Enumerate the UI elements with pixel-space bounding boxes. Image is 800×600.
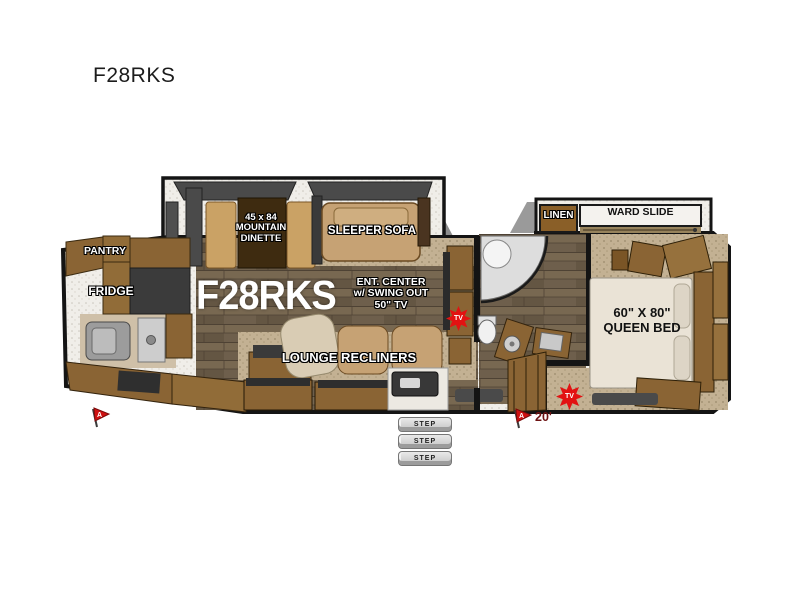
queen-bed-line2: QUEEN BED: [590, 321, 694, 336]
bed-bench: [592, 393, 658, 405]
ent-center-line3: 50" TV: [332, 300, 450, 311]
storage-cabinet-left-top: [246, 378, 310, 386]
ward-slide-label: WARD SLIDE: [580, 207, 701, 219]
wall-living-bath-lower: [474, 388, 480, 412]
bedroom-chest-upper: [713, 262, 728, 318]
awning-length-label: 20': [535, 410, 552, 424]
bed-headboard: [694, 272, 714, 392]
slide-side-window: [166, 202, 178, 240]
ward-rod-end: [693, 228, 697, 232]
model-label: F28RKS: [196, 273, 336, 319]
queen-bed-label: 60" X 80" QUEEN BED: [590, 306, 694, 335]
ent-center-base: [449, 338, 471, 364]
slide-window-right: [308, 182, 432, 200]
toilet: [478, 320, 496, 344]
bath-mirror: [539, 332, 563, 351]
queen-bed-line1: 60" X 80": [590, 306, 694, 321]
wall-bath-bottom: [541, 360, 591, 366]
fridge-label: FRIDGE: [84, 285, 138, 298]
sofa-end-table: [418, 198, 430, 246]
kitchen-sink-bowl: [92, 328, 116, 354]
awning-flag-entry-svg: A: [510, 407, 534, 431]
lounge-chair: [278, 312, 342, 380]
sleeper-sofa-label: SLEEPER SOFA: [324, 225, 420, 237]
pantry-label: PANTRY: [80, 246, 130, 257]
bed-pillow-bottom: [674, 336, 690, 380]
slide-divider: [312, 196, 322, 264]
overhead-cabinet: [130, 238, 190, 268]
island-sink-drain: [147, 336, 156, 345]
linen-label: LINEN: [539, 211, 578, 222]
floorplan-page: F28RKS: [0, 0, 800, 600]
bedroom-nightstand-top: [612, 250, 628, 270]
entry-step-2: STEP: [398, 434, 452, 449]
awning-flag-front-svg: A: [88, 406, 112, 430]
bath-sink-drain: [510, 342, 515, 347]
bedroom-dresser-left: [628, 241, 667, 276]
entry-steps: STEP STEP STEP: [398, 417, 452, 466]
tv-badge-icon-bedroom: TV: [556, 383, 583, 410]
kitchen-tall-cabinet: [166, 314, 192, 358]
bedroom-chest-lower: [713, 324, 728, 380]
flag-mark: A: [519, 413, 524, 420]
cooktop-burner: [400, 378, 420, 388]
shower-basin: [483, 240, 511, 268]
sofa-back-cushion: [334, 208, 408, 226]
flag-mark: A: [97, 412, 102, 419]
ent-center-label: ENT. CENTER w/ SWING OUT 50" TV: [332, 277, 450, 311]
entry-step-1: STEP: [398, 417, 452, 432]
range-stove: [117, 371, 160, 394]
awning-flag-icon-front: A: [88, 406, 112, 435]
tv-badge-icon-living: TV: [446, 306, 471, 331]
lounge-recliners-label: LOUNGE RECLINERS: [252, 351, 446, 365]
ent-center-line2: w/ SWING OUT: [332, 288, 450, 299]
entry-step-3: STEP: [398, 451, 452, 466]
dinette-label: 45 x 84 MOUNTAIN DINETTE: [224, 213, 298, 244]
dinette-label-line3: DINETTE: [224, 234, 298, 244]
dinette-label-line2: MOUNTAIN: [224, 223, 298, 233]
ent-center-cabinet-upper: [447, 246, 473, 290]
awning-flag-icon-entry: A: [510, 407, 534, 436]
refrigerator: [130, 268, 190, 314]
